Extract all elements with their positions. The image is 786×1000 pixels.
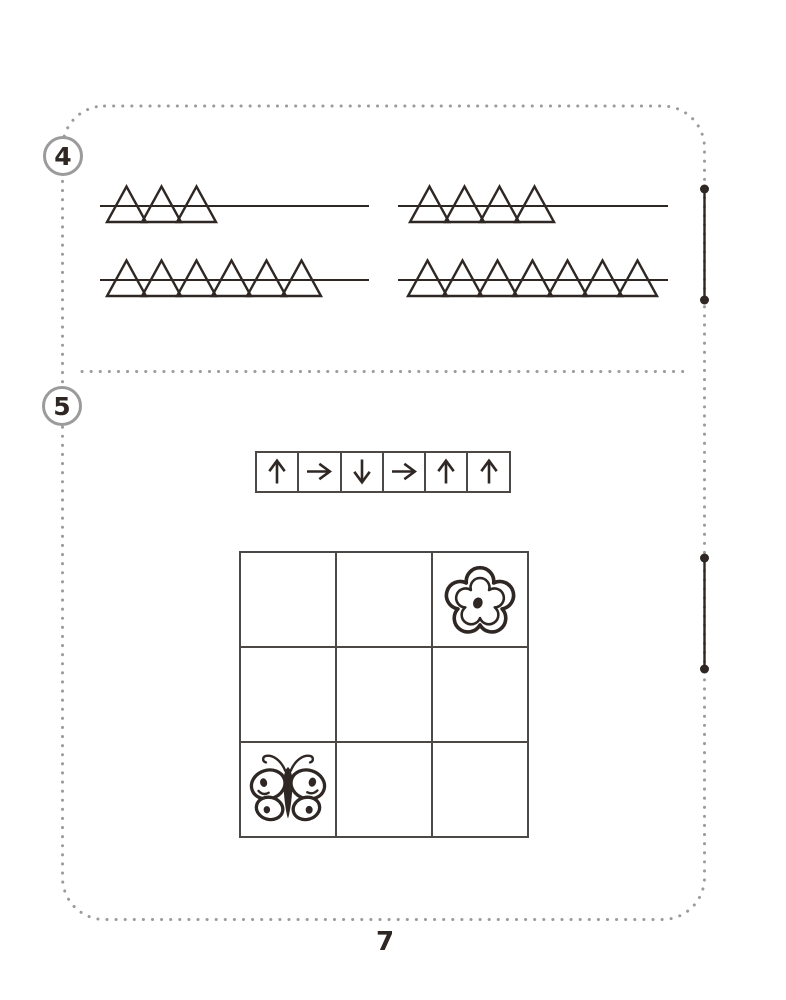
triangle-group-row2-left <box>99 252 370 304</box>
grid-cell-r2c3 <box>432 647 528 742</box>
arrow-cell <box>255 451 299 493</box>
triangle <box>583 261 622 297</box>
triangle-group-row1-left <box>99 178 370 230</box>
exercise-5-number: 5 <box>53 392 70 421</box>
triangle <box>212 261 251 297</box>
fold-mark-bottom <box>700 554 709 674</box>
frame-decoration <box>0 0 786 1000</box>
exercise-4-badge: 4 <box>43 136 83 176</box>
grid-cell-r2c2 <box>336 647 432 742</box>
triangle <box>107 261 146 297</box>
arrow-up-icon <box>439 461 454 484</box>
triangle <box>142 261 181 297</box>
exercise-5-badge: 5 <box>42 386 82 426</box>
grid-cell-r1c3 <box>432 552 528 647</box>
triangle-group-row1-right <box>397 178 669 230</box>
grid-cell-r1c2 <box>336 552 432 647</box>
arrow-sequence <box>255 451 511 493</box>
triangle-group-row2-right <box>397 252 669 304</box>
arrow-up-icon <box>481 461 496 484</box>
arrow-cell <box>424 451 468 493</box>
arrow-cell <box>466 451 510 493</box>
triangle <box>282 261 321 297</box>
triangle <box>480 187 519 223</box>
arrow-up-icon <box>269 461 284 484</box>
grid-cell-r3c2 <box>336 742 432 837</box>
arrow-cell <box>340 451 384 493</box>
triangle <box>478 261 517 297</box>
triangle <box>247 261 286 297</box>
butterfly-icon <box>242 744 334 836</box>
arrow-right-icon <box>392 464 415 479</box>
triangle <box>513 261 552 297</box>
grid-cell-r1c1 <box>240 552 336 647</box>
triangle <box>445 187 484 223</box>
arrow-right-icon <box>307 464 330 479</box>
answer-grid <box>239 551 529 838</box>
fold-mark-top <box>700 185 709 305</box>
triangle <box>142 187 181 223</box>
triangle <box>618 261 657 297</box>
triangle <box>177 261 216 297</box>
triangle <box>443 261 482 297</box>
flower-icon <box>437 557 523 643</box>
grid-cell-r3c3 <box>432 742 528 837</box>
exercise-4-number: 4 <box>54 142 71 171</box>
triangle <box>107 187 146 223</box>
arrow-down-icon <box>354 460 369 483</box>
triangle <box>410 187 449 223</box>
triangle <box>548 261 587 297</box>
arrow-cell <box>382 451 426 493</box>
worksheet-page: 4 5 7 <box>0 0 786 1000</box>
triangle <box>177 187 216 223</box>
grid-cell-r3c1 <box>240 742 336 837</box>
triangle <box>408 261 447 297</box>
triangle <box>515 187 554 223</box>
grid-cell-r2c1 <box>240 647 336 742</box>
page-number: 7 <box>0 927 770 957</box>
arrow-cell <box>297 451 341 493</box>
